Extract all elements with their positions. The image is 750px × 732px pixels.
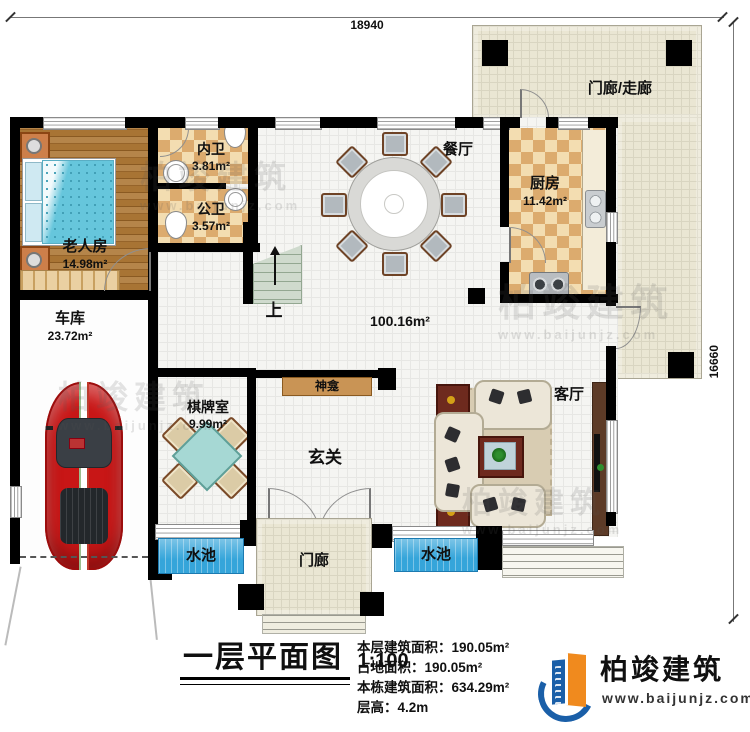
- wall: [243, 222, 253, 304]
- lamp: [26, 138, 42, 154]
- window: [558, 117, 590, 130]
- company-logo: 柏竣建筑 www.baijunjz.com: [538, 650, 738, 720]
- dining-chair: [321, 193, 347, 217]
- info-line: 层高：4.2m: [357, 698, 509, 718]
- inner-bath-label: 内卫 3.81m²: [168, 141, 254, 174]
- stair-arrow-line: [274, 253, 276, 285]
- wall: [606, 242, 616, 306]
- top-dimension-label: 18940: [335, 19, 399, 33]
- right-dimension-label: 16660: [708, 345, 722, 378]
- sofa-top: [474, 380, 552, 430]
- bed-mattress: [42, 160, 114, 244]
- area-info-block: 本层建筑面积：190.05m² 占地面积：190.05m² 本栋建筑面积：634…: [357, 638, 509, 718]
- garage-door-dashed: [20, 556, 148, 558]
- elder-bedroom-label: 老人房 14.98m²: [35, 238, 135, 273]
- info-line: 占地面积：190.05m²: [357, 658, 509, 678]
- column: [238, 584, 264, 610]
- car-body: [45, 382, 123, 570]
- wall: [10, 290, 158, 300]
- porch-walkway-label: 门廊/走廊: [545, 80, 695, 97]
- wall: [508, 117, 520, 128]
- bed-pillow: [25, 203, 42, 242]
- pool-left: 水池: [158, 538, 244, 574]
- wall: [500, 117, 509, 227]
- pool-right: 水池: [394, 538, 478, 572]
- dining-table-hub: [384, 194, 404, 214]
- wall: [455, 117, 483, 128]
- shrine-label: 神龛: [315, 380, 339, 394]
- garage-name: 车库: [55, 310, 85, 327]
- public-bath-area: 3.57m²: [192, 219, 230, 233]
- bed-pillow: [25, 162, 42, 201]
- living-room-label: 客厅: [544, 386, 594, 403]
- company-website: www.baijunjz.com: [602, 690, 750, 706]
- wall: [606, 512, 616, 526]
- pool-right-label: 水池: [421, 546, 451, 563]
- plant: [492, 448, 506, 462]
- wall: [468, 288, 485, 304]
- car-badge: [69, 438, 85, 449]
- stair-arrow-head: [270, 246, 280, 255]
- dining-chair: [441, 193, 467, 217]
- garage-area: 23.72m²: [48, 329, 93, 343]
- sofa-pillow: [444, 426, 461, 443]
- pool-left-label: 水池: [186, 547, 216, 564]
- dining-chair: [382, 132, 408, 156]
- sofa-pillow: [517, 389, 533, 405]
- terrace-steps: [502, 546, 624, 578]
- porch-column: [666, 40, 692, 66]
- elder-bedroom-area: 14.98m²: [63, 257, 108, 271]
- wall: [150, 368, 256, 377]
- kitchen-name: 厨房: [530, 175, 560, 192]
- drawing-title-text: 一层平面图: [183, 641, 343, 674]
- chess-room-name: 棋牌室: [187, 399, 229, 415]
- wall: [320, 117, 377, 128]
- dining-label: 餐厅: [428, 141, 488, 158]
- end-table-ornament: [447, 396, 455, 404]
- tv: [594, 434, 600, 492]
- sofa-pillow: [444, 456, 460, 472]
- kitchen-sink: [585, 190, 606, 228]
- chess-room-label: 棋牌室 9.99m²: [160, 399, 256, 432]
- sofa-bottom: [470, 484, 546, 528]
- logo-icon: [538, 652, 596, 714]
- dining-chair: [382, 252, 408, 276]
- wall: [247, 368, 256, 526]
- window: [502, 530, 594, 546]
- sofa-pillow: [445, 483, 460, 498]
- entry-porch-steps: [262, 614, 366, 634]
- wall: [606, 346, 616, 420]
- sofa-pillow: [511, 497, 526, 512]
- info-line: 本栋建筑面积：634.29m²: [357, 678, 509, 698]
- column: [360, 592, 384, 616]
- chess-room-area: 9.99m²: [189, 417, 227, 431]
- logo-building-orange: [566, 653, 586, 707]
- wall: [606, 117, 616, 212]
- foyer-label: 玄关: [293, 448, 357, 468]
- wall: [218, 117, 275, 128]
- elder-bedroom-name: 老人房: [62, 238, 107, 255]
- wall: [158, 183, 226, 189]
- window: [606, 420, 618, 514]
- wall: [500, 294, 618, 303]
- window: [185, 117, 220, 130]
- porch-column: [482, 40, 508, 66]
- sofa-pillow: [482, 496, 498, 512]
- car-mirror: [115, 426, 123, 430]
- garage-label: 车库 23.72m²: [20, 310, 120, 345]
- window: [43, 117, 127, 130]
- window: [606, 212, 618, 244]
- car: [45, 382, 123, 570]
- plant-small: [597, 464, 604, 471]
- public-bath-name: 公卫: [197, 201, 225, 217]
- car-engine-cover: [60, 488, 108, 544]
- kitchen-label: 厨房 11.42m²: [505, 175, 585, 210]
- car-mirror: [45, 426, 53, 430]
- company-name: 柏竣建筑: [600, 654, 724, 686]
- driveway-line: [4, 567, 21, 646]
- wall: [546, 117, 558, 128]
- wall: [148, 300, 158, 555]
- title-underline-thin: [180, 684, 350, 685]
- info-line: 本层建筑面积：190.05m²: [357, 638, 509, 658]
- floor-plan-canvas: 18940 16660 门廊/走廊 上: [0, 0, 750, 732]
- entry-porch-label: 门廊: [288, 552, 340, 569]
- title-underline-thick: [180, 677, 350, 680]
- stairs-up-label: 上: [260, 301, 288, 321]
- open-area-label: 100.16m²: [355, 313, 445, 329]
- porch-column: [668, 352, 694, 378]
- right-dimension-line: [733, 22, 734, 622]
- column: [476, 526, 502, 570]
- wall: [378, 368, 396, 390]
- inner-bath-name: 内卫: [197, 141, 225, 157]
- public-bath-label: 公卫 3.57m²: [168, 201, 254, 234]
- kitchen-area: 11.42m²: [523, 194, 567, 208]
- window: [377, 117, 457, 130]
- sofa-pillow: [488, 388, 504, 404]
- logo-building-blue: [552, 659, 565, 704]
- inner-bath-area: 3.81m²: [192, 159, 230, 173]
- window: [275, 117, 322, 130]
- window: [10, 486, 22, 518]
- shrine-shelf: 神龛: [282, 377, 372, 396]
